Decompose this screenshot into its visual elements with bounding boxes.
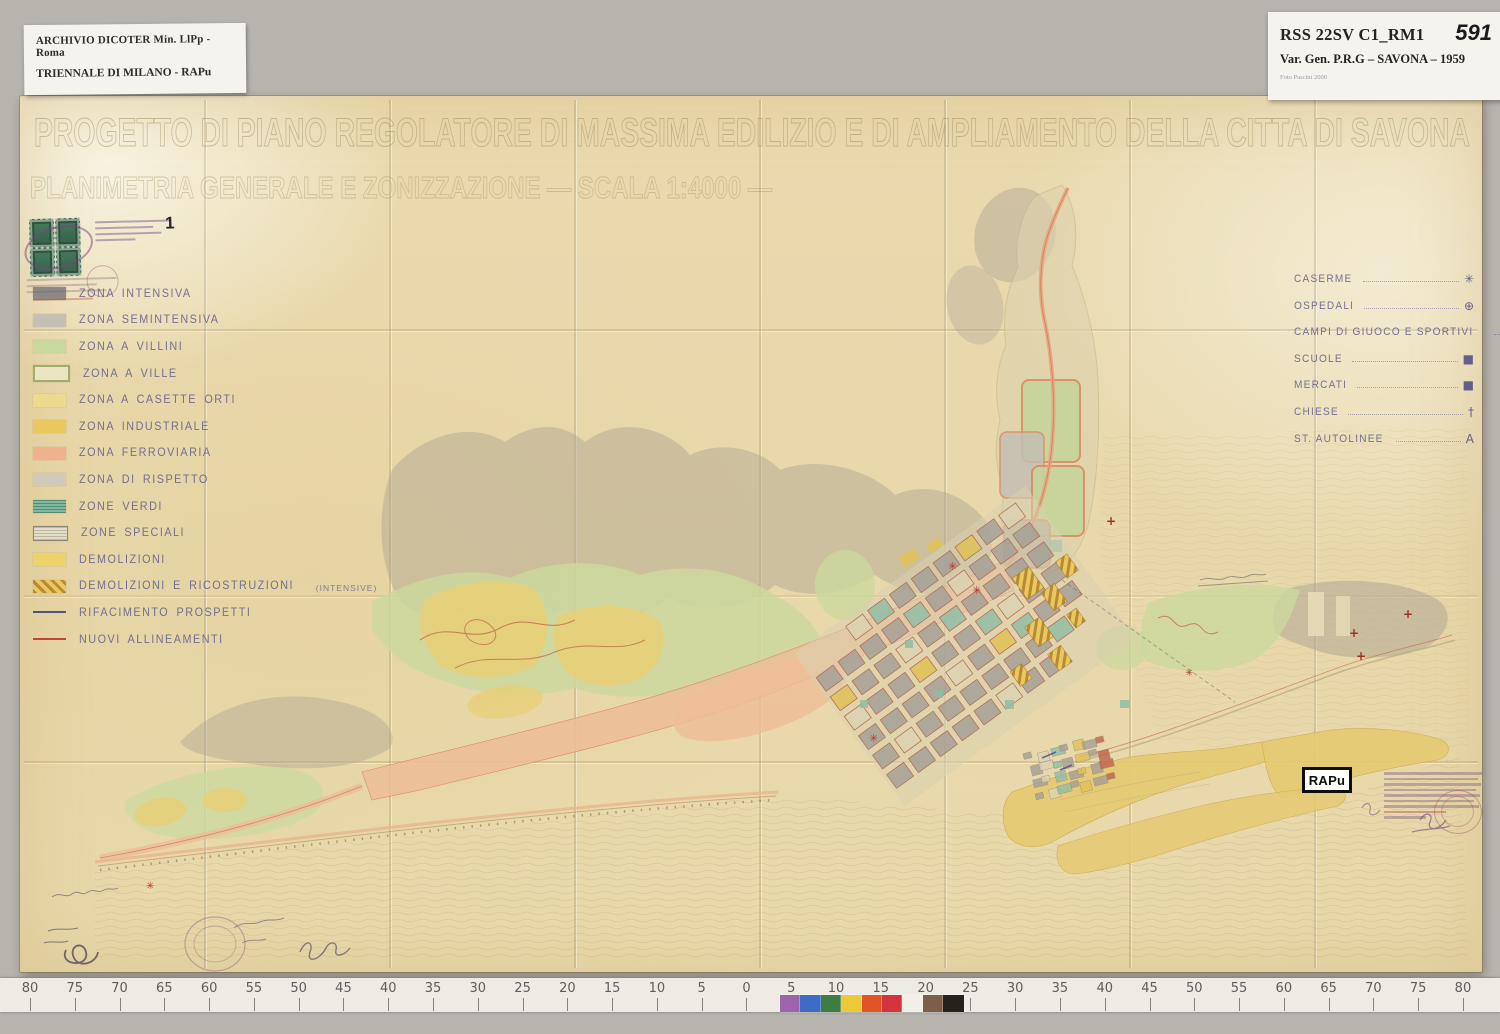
- svg-text:+: +: [1349, 626, 1359, 640]
- archive-line-1: ARCHIVIO DICOTER Min. LlPp - Roma: [36, 33, 236, 59]
- legend-swatch: [33, 638, 66, 642]
- ruler-tick: [1329, 998, 1330, 1011]
- dotted-leader: [1352, 361, 1458, 362]
- legend-swatch: [33, 447, 66, 460]
- rapu-tag: RAPu: [1302, 767, 1352, 793]
- color-calibration-patch: [821, 995, 841, 1012]
- ruler-tick: [433, 998, 434, 1011]
- legend-symbol-label: CAMPI DI GIUOCO E SPORTIVI: [1294, 326, 1473, 338]
- caserme-icon: ✳: [1464, 273, 1474, 285]
- ruler-number: 20: [911, 981, 941, 996]
- archive-title: Var. Gen. P.R.G – SAVONA – 1959: [1280, 52, 1496, 67]
- ruler-tick: [209, 998, 210, 1011]
- color-calibration-patch: [780, 995, 800, 1012]
- color-calibration-patch: [882, 995, 902, 1012]
- ruler-tick: [1463, 998, 1464, 1011]
- ruler-number: 70: [105, 981, 135, 996]
- ruler-tick: [1105, 998, 1106, 1011]
- svg-text:✳: ✳: [146, 881, 154, 892]
- legend-zone-item: ZONE SPECIALI: [33, 524, 192, 540]
- scuole-icon: ■: [1463, 353, 1474, 365]
- color-calibration-patch: [923, 995, 943, 1012]
- ruler-tick: [1015, 998, 1016, 1011]
- map-subtitle: PLANIMETRIA GENERALE E ZONIZZAZIONE — SC…: [30, 170, 772, 205]
- ruler-tick: [1150, 998, 1151, 1011]
- ruler-tick: [1194, 998, 1195, 1011]
- legend-symbol-item: CAMPI DI GIUOCO E SPORTIVI▶: [1294, 323, 1474, 338]
- ruler-number: 45: [328, 981, 358, 996]
- ruler-tick: [1373, 998, 1374, 1011]
- legend-symbol-item: CASERME✳: [1294, 270, 1474, 285]
- ruler-number: 60: [194, 981, 224, 996]
- dotted-leader: [1363, 281, 1459, 282]
- svg-text:+: +: [1403, 607, 1413, 621]
- ink-stamp-round-right: [1434, 790, 1482, 834]
- ruler-number: 25: [955, 981, 985, 996]
- legend-swatch: [33, 340, 66, 353]
- legend-zone-label: RIFACIMENTO PROSPETTI: [79, 607, 251, 619]
- legend-zone-item: ZONA A VILLE: [33, 365, 184, 381]
- ruler-tick: [1284, 998, 1285, 1011]
- legend-zone-label: ZONE SPECIALI: [81, 527, 185, 539]
- svg-text:+: +: [1356, 649, 1366, 663]
- st-autolinee-icon: A: [1466, 433, 1474, 445]
- ruler-number: 70: [1358, 981, 1388, 996]
- legend-zone-suffix: (INTENSIVE): [316, 583, 378, 593]
- legend-symbol-label: ST. AUTOLINEE: [1294, 433, 1384, 445]
- legend-swatch: [33, 314, 66, 327]
- legend-zone-label: ZONA SEMINTENSIVA: [79, 314, 220, 326]
- color-calibration-patch: [800, 995, 820, 1012]
- dotted-leader: [1364, 308, 1459, 309]
- legend-zone-item: NUOVI ALLINEAMENTI: [33, 631, 233, 647]
- legend-zone-item: DEMOLIZIONI E RICOSTRUZIONI(INTENSIVE): [33, 578, 377, 594]
- archive-line-2: TRIENNALE DI MILANO - RAPu: [36, 66, 236, 80]
- ruler-tick: [120, 998, 121, 1011]
- legend-zone-item: ZONA A CASETTE ORTI: [33, 391, 246, 407]
- legend-swatch: [33, 394, 66, 407]
- legend-zone-label: ZONE VERDI: [79, 501, 163, 513]
- stamp-subtext-lines: [27, 277, 122, 297]
- ruler-number: 5: [776, 981, 806, 996]
- ruler-number: 0: [731, 981, 761, 996]
- ruler-number: 20: [552, 981, 582, 996]
- ruler-tick: [523, 998, 524, 1011]
- ruler-number: 40: [373, 981, 403, 996]
- legend-zone-label: ZONA A VILLE: [83, 368, 178, 380]
- ruler-tick: [254, 998, 255, 1011]
- legend-swatch: [33, 553, 66, 566]
- ruler-tick: [1060, 998, 1061, 1011]
- ruler-tick: [746, 998, 747, 1011]
- legend-symbol-item: OSPEDALI⊕: [1294, 297, 1474, 312]
- ruler-number: 65: [149, 981, 179, 996]
- ruler-number: 40: [1090, 981, 1120, 996]
- legend-swatch: [33, 473, 66, 486]
- ruler-tick: [343, 998, 344, 1011]
- legend-zone-label: ZONA DI RISPETTO: [79, 474, 209, 486]
- legend-symbol-label: CASERME: [1294, 273, 1352, 285]
- archive-label-left: ARCHIVIO DICOTER Min. LlPp - Roma TRIENN…: [24, 23, 247, 95]
- ruler-number: 80: [15, 981, 45, 996]
- legend-zone-label: ZONA A CASETTE ORTI: [79, 394, 236, 406]
- legend-swatch: [33, 611, 66, 615]
- ruler-number: 15: [597, 981, 627, 996]
- map-artwork: PROGETTO DI PIANO REGOLATORE DI MASSIMA …: [0, 0, 1500, 1034]
- color-calibration-patch: [902, 995, 922, 1012]
- legend-symbol-label: MERCATI: [1294, 379, 1347, 391]
- approval-stamps: 1: [23, 211, 200, 306]
- legend-zone-label: ZONA A VILLINI: [79, 341, 183, 353]
- ruler-tick: [657, 998, 658, 1011]
- ruler-number: 55: [239, 981, 269, 996]
- legend-zone-item: ZONA A VILLINI: [33, 338, 190, 354]
- legend-zone-item: RIFACIMENTO PROSPETTI: [33, 604, 262, 620]
- svg-text:✳: ✳: [948, 560, 957, 573]
- archival-photo-scene: PROGETTO DI PIANO REGOLATORE DI MASSIMA …: [0, 0, 1500, 1034]
- ruler-tick: [30, 998, 31, 1011]
- legend-symbol-item: SCUOLE■: [1294, 350, 1474, 365]
- ruler-number: 50: [284, 981, 314, 996]
- legend-swatch: [33, 500, 66, 513]
- legend-zone-label: DEMOLIZIONI: [79, 554, 166, 566]
- legend-zone-item: ZONE VERDI: [33, 498, 168, 514]
- svg-text:✳: ✳: [1185, 668, 1193, 679]
- ruler-tick: [702, 998, 703, 1011]
- stamp-text-lines: [95, 219, 174, 245]
- svg-text:+: +: [1106, 514, 1116, 528]
- legend-zone-item: ZONA FERROVIARIA: [33, 445, 220, 461]
- ospedali-icon: ⊕: [1464, 300, 1474, 312]
- ruler-tick: [567, 998, 568, 1011]
- dotted-leader: [1494, 334, 1500, 335]
- legend-zone-label: ZONA FERROVIARIA: [79, 447, 212, 459]
- mercati-icon: ■: [1463, 379, 1474, 391]
- handwritten-number: 1: [165, 213, 175, 233]
- ruler-number: 10: [642, 981, 672, 996]
- ruler-number: 25: [508, 981, 538, 996]
- legend-zone-item: DEMOLIZIONI: [33, 551, 171, 567]
- legend-zone-item: ZONA SEMINTENSIVA: [33, 312, 228, 328]
- color-calibration-patch: [862, 995, 882, 1012]
- dotted-leader: [1348, 414, 1463, 415]
- legend-swatch: [33, 365, 70, 382]
- ruler-number: 35: [418, 981, 448, 996]
- legend-symbol-label: CHIESE: [1294, 406, 1339, 418]
- legend-symbol-item: MERCATI■: [1294, 376, 1474, 391]
- ruler-number: 5: [687, 981, 717, 996]
- measuring-ruler: 8075706560555045403530252015105051015202…: [0, 978, 1500, 1012]
- legend-symbol-item: CHIESE†: [1294, 403, 1474, 418]
- legend-zone-item: ZONA INDUSTRIALE: [33, 418, 218, 434]
- legend-symbol-label: SCUOLE: [1294, 353, 1343, 365]
- color-calibration-patch: [943, 995, 963, 1012]
- ruler-number: 80: [1448, 981, 1478, 996]
- stamp-red-line: [33, 297, 93, 301]
- ruler-tick: [164, 998, 165, 1011]
- ruler-number: 60: [1269, 981, 1299, 996]
- ruler-number: 65: [1314, 981, 1344, 996]
- chiese-icon: †: [1468, 406, 1474, 418]
- ruler-number: 75: [1403, 981, 1433, 996]
- ruler-number: 15: [866, 981, 896, 996]
- archive-label-right: RSS 22SV C1_RM1 591 Var. Gen. P.R.G – SA…: [1268, 12, 1500, 100]
- legend-zone-label: ZONA INDUSTRIALE: [79, 421, 210, 433]
- ruler-tick: [1239, 998, 1240, 1011]
- ruler-number: 75: [60, 981, 90, 996]
- legend-swatch: [33, 526, 68, 541]
- ruler-tick: [612, 998, 613, 1011]
- ruler-number: 45: [1135, 981, 1165, 996]
- ruler-tick: [388, 998, 389, 1011]
- legend-zone-label: NUOVI ALLINEAMENTI: [79, 634, 224, 646]
- color-calibration-patch: [841, 995, 861, 1012]
- ruler-tick: [299, 998, 300, 1011]
- legend-swatch: [33, 420, 66, 433]
- ruler-tick: [970, 998, 971, 1011]
- dotted-leader: [1357, 387, 1458, 388]
- ruler-tick: [75, 998, 76, 1011]
- legend-symbol-item: ST. AUTOLINEEA: [1294, 430, 1474, 445]
- dotted-leader: [1396, 441, 1460, 442]
- ruler-tick: [1418, 998, 1419, 1011]
- legend-zone-label: DEMOLIZIONI E RICOSTRUZIONI: [79, 580, 294, 592]
- legend-symbol-label: OSPEDALI: [1294, 300, 1354, 312]
- legend-zone-item: ZONA DI RISPETTO: [33, 471, 217, 487]
- archive-code: RSS 22SV C1_RM1: [1280, 25, 1424, 45]
- legend-swatch: [33, 580, 66, 593]
- ruler-number: 10: [821, 981, 851, 996]
- ruler-number: 35: [1045, 981, 1075, 996]
- ruler-tick: [478, 998, 479, 1011]
- svg-text:✳: ✳: [869, 732, 878, 745]
- ruler-number: 50: [1179, 981, 1209, 996]
- svg-text:✳: ✳: [972, 584, 981, 597]
- ruler-number: 55: [1224, 981, 1254, 996]
- photo-credit: Foto Pascini 2000: [1280, 74, 1496, 81]
- map-title: PROGETTO DI PIANO REGOLATORE DI MASSIMA …: [34, 111, 1470, 155]
- ruler-number: 30: [1000, 981, 1030, 996]
- ruler-number: 30: [463, 981, 493, 996]
- archive-number: 591: [1455, 20, 1492, 46]
